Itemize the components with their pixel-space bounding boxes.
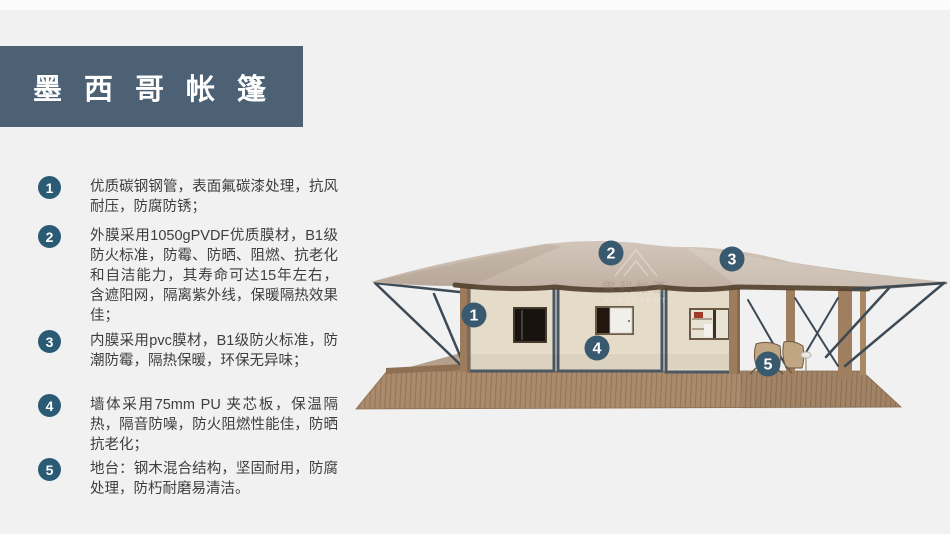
callout-marker-2: 2 <box>599 241 624 266</box>
slide-canvas: 墨西哥帐篷 1 优质碳钢钢管，表面氟碳漆处理，抗风耐压，防腐防锈； 2 外膜采用… <box>0 0 950 534</box>
svg-text:3: 3 <box>728 252 737 269</box>
page-title: 墨西哥帐篷 <box>33 66 288 108</box>
feature-number-badge-1: 1 <box>38 176 61 199</box>
feature-list: 1 优质碳钢钢管，表面氟碳漆处理，抗风耐压，防腐防锈； 2 外膜采用1050gP… <box>38 177 340 499</box>
feature-number-badge-2: 2 <box>38 225 61 248</box>
feature-number-badge-5: 5 <box>38 458 61 481</box>
tent-illustration: 雪利帐篷 XUELI TENT 1 2 3 4 5 <box>350 212 950 427</box>
feature-item-4: 4 墙体采用75mm PU 夹芯板，保温隔热，隔音防噪，防火阻燃性能佳，防晒抗老… <box>38 395 340 455</box>
window-3 <box>690 309 729 339</box>
porch-post-3 <box>860 291 866 375</box>
feature-text-4: 墙体采用75mm PU 夹芯板，保温隔热，隔音防噪，防火阻燃性能佳，防晒抗老化； <box>90 395 338 455</box>
feature-item-1: 1 优质碳钢钢管，表面氟碳漆处理，抗风耐压，防腐防锈； <box>38 177 340 217</box>
svg-text:2: 2 <box>607 246 616 263</box>
window-1 <box>514 308 546 342</box>
feature-item-2: 2 外膜采用1050gPVDF优质膜材，B1级防火标准，防霉、防晒、阻燃、抗老化… <box>38 226 340 326</box>
callout-marker-1: 1 <box>462 303 487 328</box>
watermark-cn-text: 雪利帐篷 <box>602 280 670 295</box>
window-2 <box>595 306 634 335</box>
feature-text-5: 地台：钢木混合结构，坚固耐用，防腐处理，防朽耐磨易清洁。 <box>90 459 338 499</box>
svg-text:5: 5 <box>764 357 773 374</box>
title-banner: 墨西哥帐篷 <box>0 46 303 127</box>
feature-item-3: 3 内膜采用pvc膜材，B1级防火标准，防潮防霉，隔热保暖，环保无异味； <box>38 331 340 371</box>
feature-text-3: 内膜采用pvc膜材，B1级防火标准，防潮防霉，隔热保暖，环保无异味； <box>90 331 338 371</box>
top-margin-strip <box>0 0 950 10</box>
feature-number-badge-4: 4 <box>38 394 61 417</box>
feature-number-badge-3: 3 <box>38 330 61 353</box>
svg-text:1: 1 <box>470 308 479 325</box>
callout-marker-3: 3 <box>720 247 745 272</box>
callout-marker-5: 5 <box>756 352 781 377</box>
feature-text-2: 外膜采用1050gPVDF优质膜材，B1级防火标准，防霉、防晒、阻燃、抗老化和自… <box>90 226 338 326</box>
feature-item-5: 5 地台：钢木混合结构，坚固耐用，防腐处理，防朽耐磨易清洁。 <box>38 459 340 499</box>
feature-text-1: 优质碳钢钢管，表面氟碳漆处理，抗风耐压，防腐防锈； <box>90 177 338 217</box>
svg-text:4: 4 <box>593 341 602 358</box>
callout-marker-4: 4 <box>585 336 610 361</box>
watermark-en-text: XUELI TENT <box>604 296 667 305</box>
